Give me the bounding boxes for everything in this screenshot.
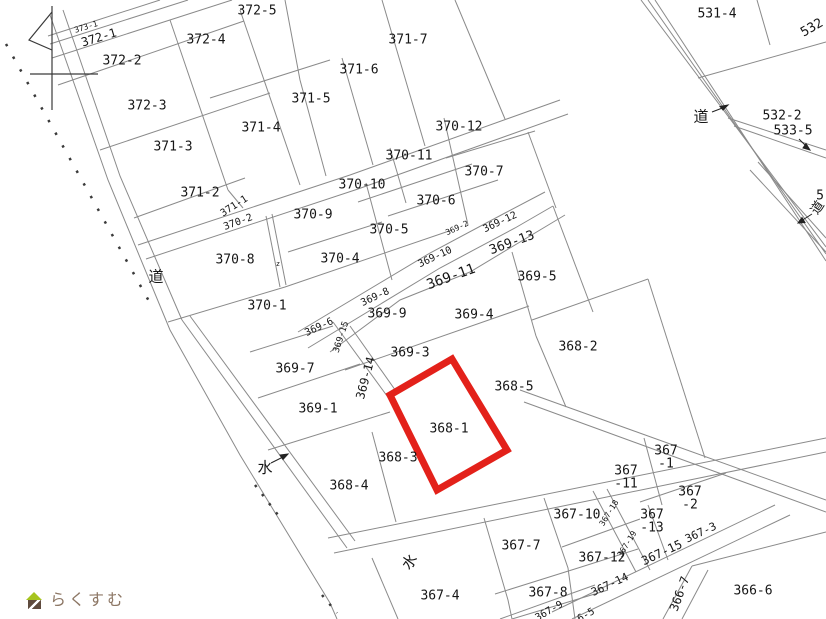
parcel-label: 366-6 [733,584,772,599]
parcel-label: 369-5 [517,270,556,285]
parcel-label: 370-4 [320,252,359,267]
watermark: らくすむ [26,592,126,609]
parcel-label: 367-13 [640,507,663,535]
parcel-label: 367-1 [654,443,677,471]
parcel-label: 367-7 [501,539,540,554]
parcel-label: 369-1 [298,402,337,417]
parcel-label: 367-9 [533,599,565,619]
parcel-label: 368-4 [329,479,368,494]
parcel-label: 368-5 [494,380,533,395]
parcel-label: 531-4 [697,7,736,22]
road-label: 道 [693,108,708,126]
parcel-label: 369-3 [390,346,429,361]
parcel-label: 370-9 [293,208,332,223]
parcel-label: 372-2 [102,54,141,69]
parcel-small-label: 367-18 [598,498,621,527]
parcel-label: 370-6 [416,194,455,209]
water-label: 水 [257,459,272,477]
parcel-label: 371-4 [241,121,280,136]
parcel-label: 367-8 [528,586,567,601]
parcel-label: 533-5 [773,124,812,139]
parcel-label: 370-7 [464,165,503,180]
parcel-label: 367-10 [554,508,601,523]
parcel-label: 370-10 [339,178,386,193]
road-label: 道 [148,268,163,286]
parcel-label: 367-4 [420,589,459,604]
parcel-highlighted-label: 368-1 [429,422,468,437]
parcel-label: 367-11 [614,463,637,491]
parcel-label: 371-6 [339,63,378,78]
parcel-label: 367-2 [678,484,701,512]
parcel-label: 369-12 [482,210,519,235]
survey-mark-label: z [276,260,280,268]
parcel-label: 369-8 [359,286,391,309]
parcel-label: 369-11 [424,261,477,293]
parcel-label: 371-2 [180,186,219,201]
parcel-small-label: 369-2 [444,219,470,237]
parcel-label: 369-7 [275,362,314,377]
parcel-label: 372-5 [237,4,276,19]
parcel-partial-label: 532 [798,16,826,41]
parcel-partial-label: 6-5 [576,606,597,619]
parcel-label: 370-5 [369,223,408,238]
parcel-label: 370-1 [247,299,286,314]
parcel-label: 371-5 [291,92,330,107]
water-label: 水 [398,550,421,573]
parcel-label: 371-3 [153,140,192,155]
parcel-label: 367-12 [579,551,626,566]
dotted-boundary-line [6,44,337,613]
parcel-label: 370-12 [436,120,483,135]
parcel-label: 369-10 [417,245,454,270]
parcel-label: 367-14 [589,570,631,599]
parcel-label: 532-2 [762,109,801,124]
parcel-label: 367-3 [683,520,719,546]
parcel-label: 368-2 [558,340,597,355]
parcel-label: 368-3 [378,451,417,466]
cadastral-map: 373-1372-1372-2372-4372-5372-3371-3371-4… [0,0,826,619]
parcel-label: 370-8 [215,253,254,268]
parcel-label: 372-3 [127,99,166,114]
cadastral-map-screenshot: 373-1372-1372-2372-4372-5372-3371-3371-4… [0,0,826,619]
parcel-label: 370-11 [386,149,433,164]
parcel-label: 371-7 [388,33,427,48]
house-icon [26,592,43,609]
parcel-label: 369-4 [454,308,493,323]
watermark-text: らくすむ [50,593,126,609]
parcel-label: 372-4 [186,33,225,48]
parcel-label: 369-9 [367,307,406,322]
